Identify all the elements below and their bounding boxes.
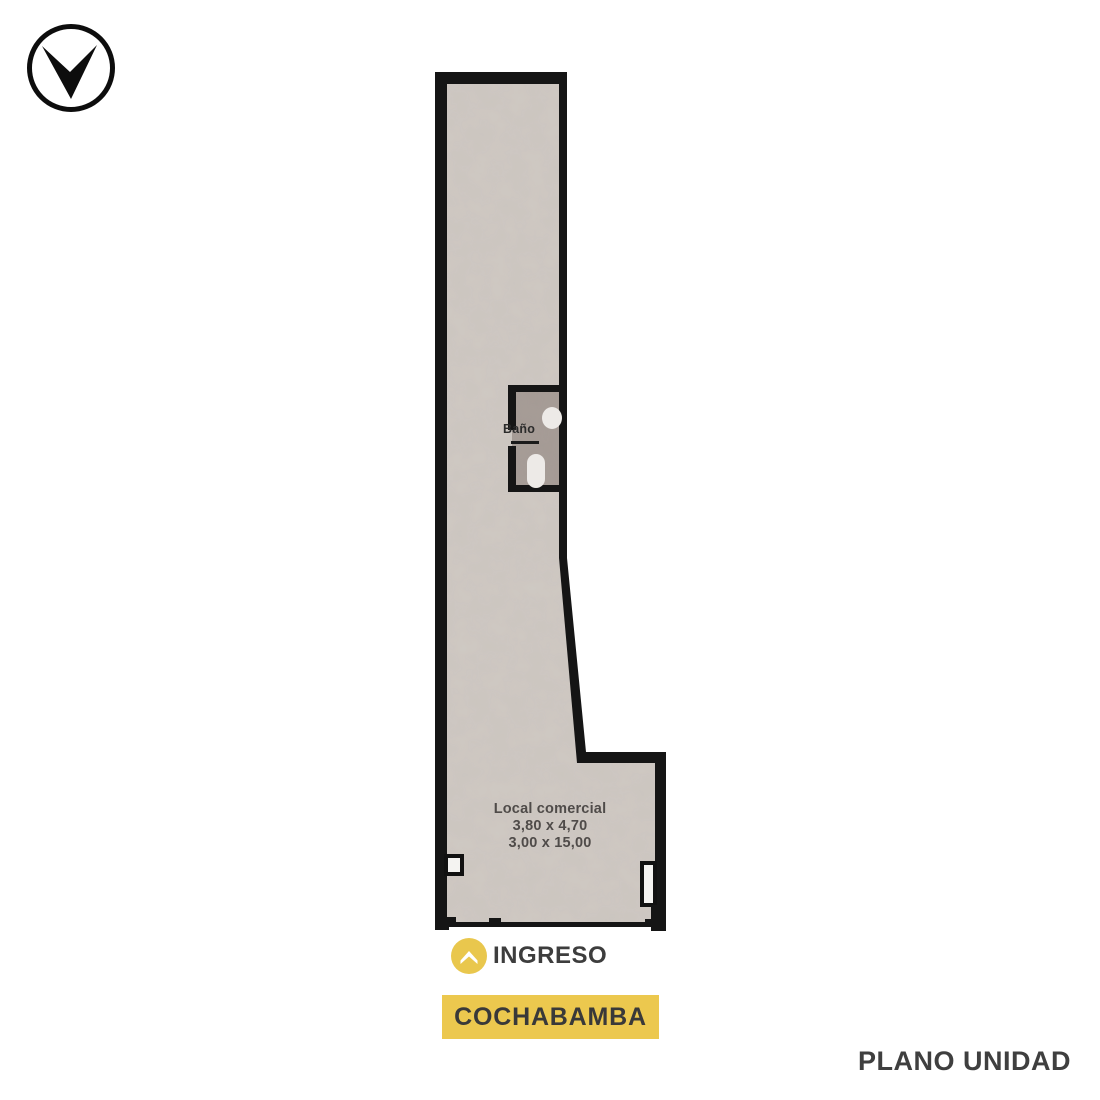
entrance-label: INGRESO xyxy=(493,942,607,970)
entrance-indicator: INGRESO xyxy=(451,937,607,975)
storefront-trim xyxy=(449,927,651,933)
unit-label: Local comercial 3,80 x 4,70 3,00 x 15,00 xyxy=(447,801,653,852)
storefront-post-right xyxy=(651,905,666,931)
page: { "colors": { "background": "#ffffff", "… xyxy=(0,0,1100,1100)
unit-label-line1: Local comercial xyxy=(447,801,653,818)
bathroom-label: Baño xyxy=(503,422,547,436)
unit-label-line2: 3,80 x 4,70 xyxy=(447,818,653,835)
bathroom-door-line xyxy=(511,441,539,444)
toilet-fixture xyxy=(527,454,545,488)
storefront-mullion-3 xyxy=(645,919,653,925)
unit-label-line3: 3,00 x 15,00 xyxy=(447,835,653,852)
left-opening-marker xyxy=(446,856,462,874)
storefront-mullion-2 xyxy=(489,918,501,925)
chevron-up-icon xyxy=(451,938,487,974)
street-banner-label: COCHABAMBA xyxy=(454,1003,647,1032)
plan-caption: PLANO UNIDAD xyxy=(771,1046,1071,1077)
street-banner: COCHABAMBA xyxy=(442,995,659,1039)
right-opening-marker xyxy=(642,863,655,905)
storefront-mullion-1 xyxy=(447,917,456,925)
floorplan-canvas xyxy=(0,0,1100,1100)
